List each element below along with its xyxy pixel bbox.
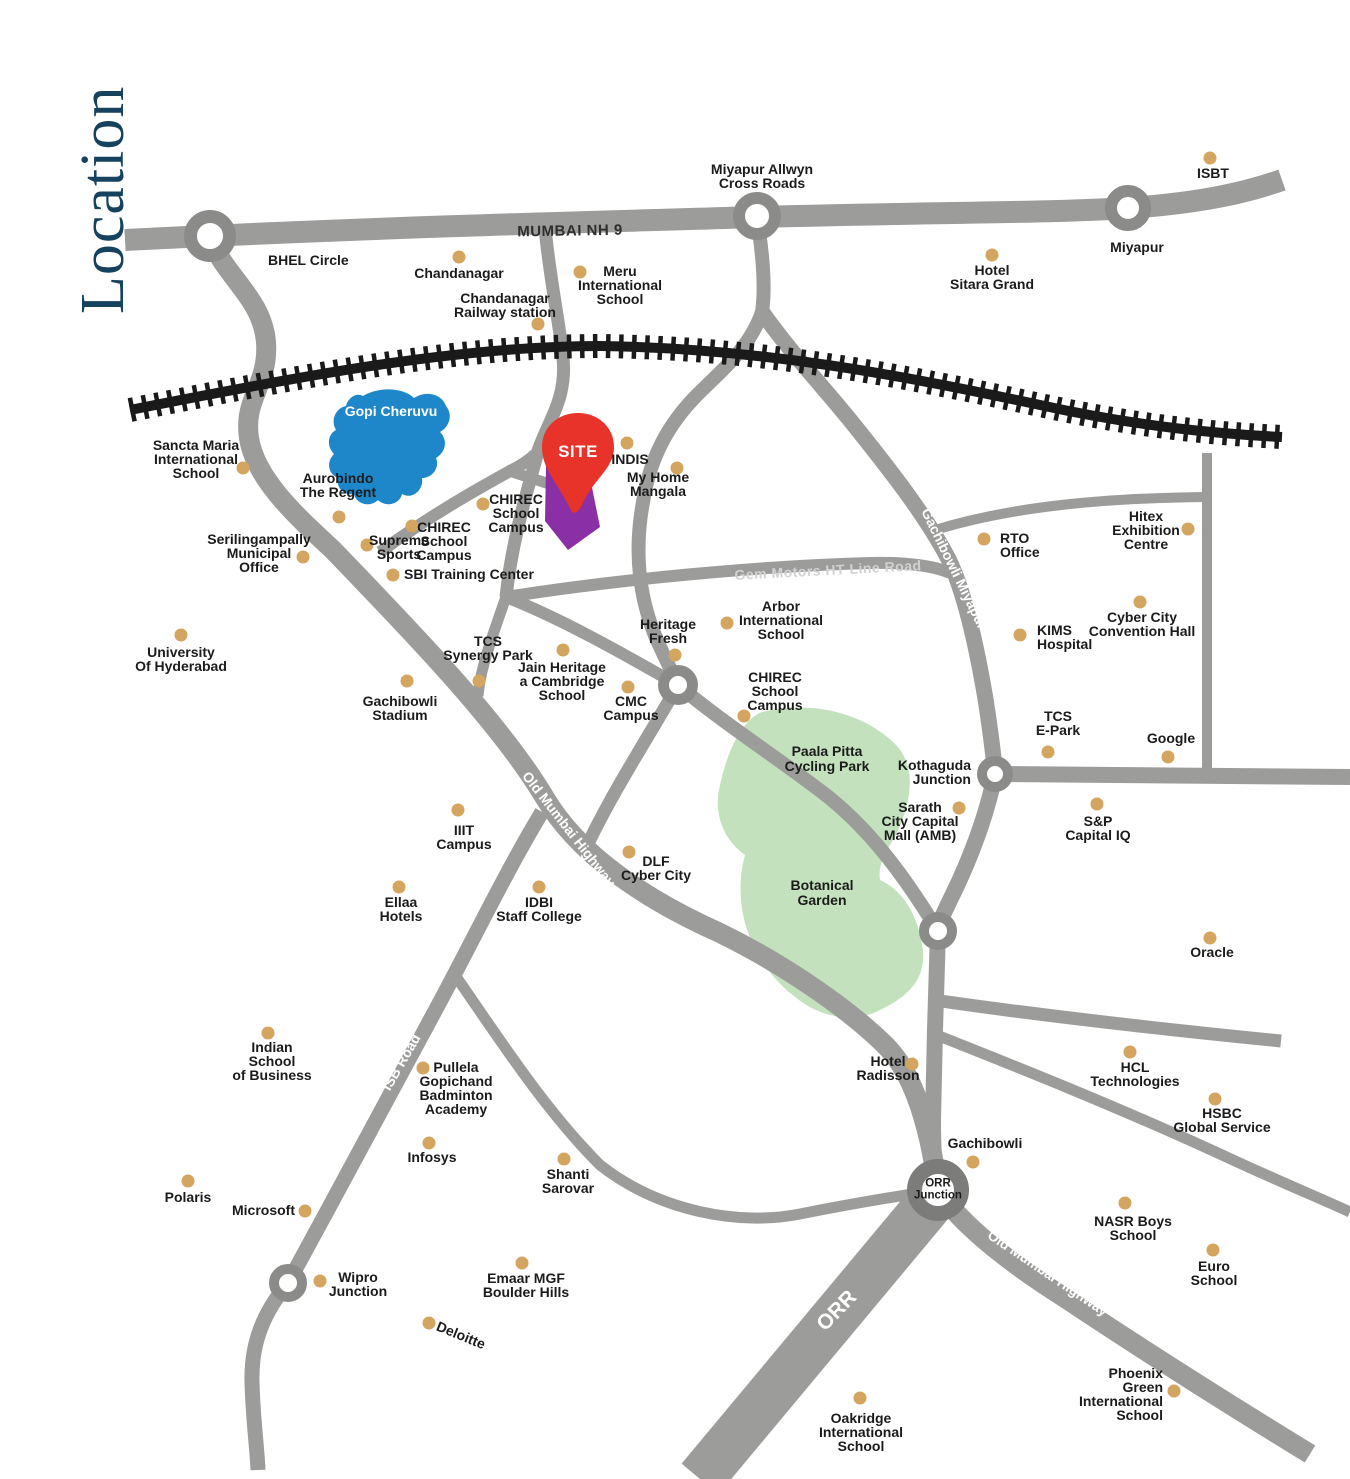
lake-gopi-cheruvu — [329, 389, 450, 504]
road-miyapur-branch-west — [639, 217, 764, 685]
road-gachibowli-miyapur-south — [933, 774, 995, 1190]
road-heritage-sw — [584, 685, 678, 852]
location-map: SITE Location Gopi Cheruvu Paala Pitta C… — [0, 0, 1350, 1479]
road-orr — [700, 1184, 946, 1479]
road-ht-south-merge — [478, 597, 506, 696]
road-ht-line — [506, 563, 950, 597]
road-150ft — [506, 228, 564, 597]
road-right-connector — [935, 497, 1207, 530]
map-graphic: SITE — [0, 0, 1350, 1479]
road-southeast — [934, 1034, 1350, 1212]
site-pin-label: SITE — [558, 442, 598, 461]
road-mumbai-nh9 — [125, 180, 1282, 240]
road-east-stub — [934, 1000, 1281, 1041]
road-old-mumbai-highway-south — [938, 1190, 1310, 1454]
site-marker: SITE — [542, 413, 614, 550]
road-wipro-south — [252, 1283, 288, 1470]
road-kothaguda-east — [995, 774, 1350, 777]
